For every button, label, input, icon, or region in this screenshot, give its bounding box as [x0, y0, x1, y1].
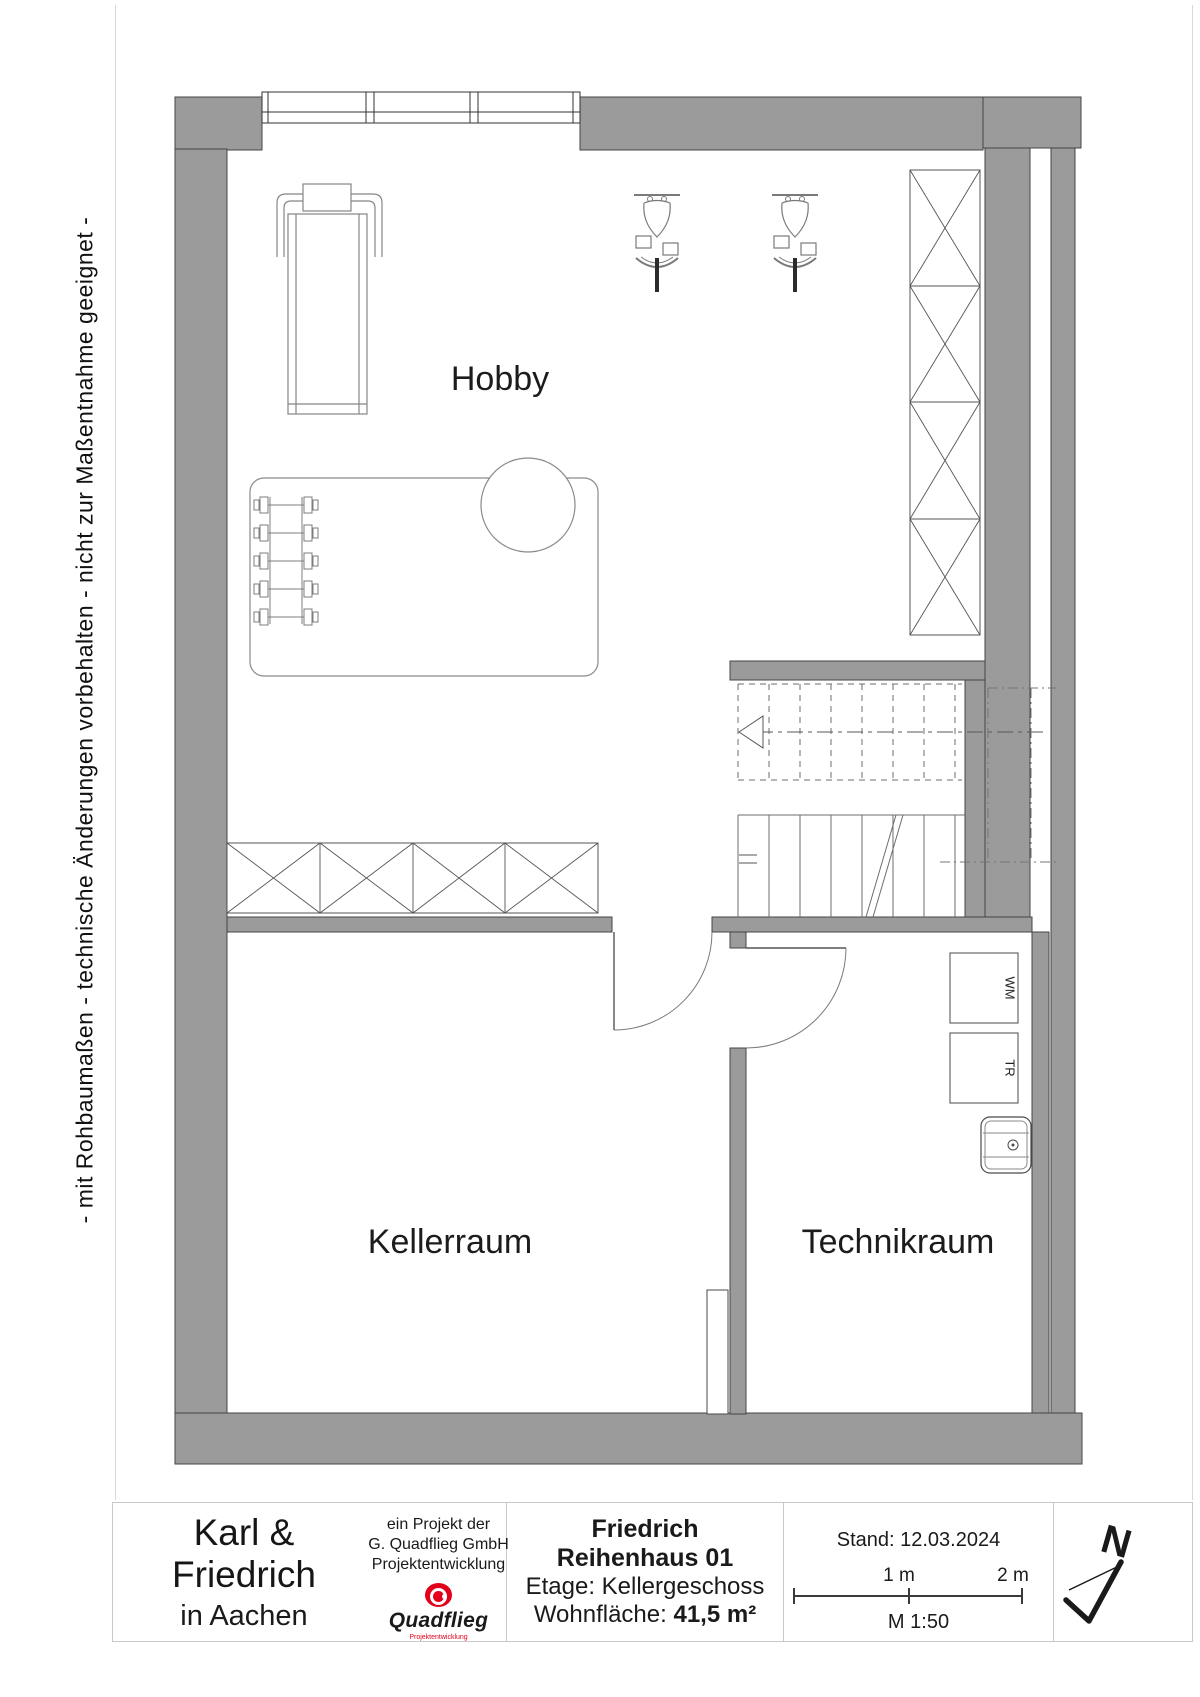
- logo-subtitle: Projektentwicklung: [409, 1634, 467, 1641]
- project-name: Friedrich: [592, 1515, 699, 1544]
- radiator: [707, 1290, 728, 1414]
- project-house: Reihenhaus 01: [557, 1544, 733, 1573]
- scale-tick: [1021, 1588, 1023, 1604]
- client-name: Karl & Friedrich: [119, 1512, 369, 1596]
- dryer-label: TR: [1003, 1059, 1018, 1076]
- wall-door-stub: [730, 932, 746, 948]
- utility-sink-icon: [981, 1117, 1031, 1173]
- plan-scale: M 1:50: [784, 1611, 1053, 1634]
- company-line: G. Quadflieg GmbH: [368, 1535, 509, 1555]
- stair-direction-arrow: [739, 716, 763, 748]
- title-block: Karl & Friedrich in Aachen ein Projekt d…: [112, 1502, 1193, 1642]
- project-floor: Etage: Kellergeschoss: [526, 1573, 765, 1601]
- wall-top: [580, 97, 983, 150]
- quadflieg-logo-icon: [425, 1583, 452, 1607]
- scale-label-1m: 1 m: [869, 1565, 929, 1587]
- client-city: in Aachen: [180, 1600, 307, 1633]
- wall-bottom: [175, 1413, 1082, 1464]
- wall-stairwell-bottom: [712, 917, 1032, 932]
- wall-right-inner-leaf: [985, 148, 1030, 932]
- exercise-bike-icon: [772, 195, 818, 292]
- north-letter: N: [1096, 1517, 1136, 1567]
- shelf-cabinet: [227, 843, 598, 913]
- washing-machine-label: WM: [1003, 976, 1018, 999]
- wall-above-stairs: [730, 661, 985, 680]
- scale-tick: [908, 1588, 910, 1604]
- title-block-north: N: [1053, 1503, 1192, 1641]
- company-line: Projektentwicklung: [372, 1555, 505, 1575]
- stair-break-line: [873, 815, 903, 917]
- wall-stairwell-right: [965, 680, 985, 932]
- scale-tick: [793, 1588, 795, 1604]
- title-block-meta: Stand: 12.03.2024 1 m 2 m M 1:50: [784, 1503, 1053, 1641]
- door-technikraum: [746, 948, 846, 1048]
- project-area: Wohnfläche: 41,5 m²: [534, 1601, 756, 1629]
- dryer: TR: [950, 1033, 1018, 1103]
- title-block-company: ein Projekt der G. Quadflieg GmbH Projek…: [371, 1503, 506, 1641]
- wall-hobby-kellerraum: [227, 917, 612, 932]
- wall-left: [175, 149, 227, 1414]
- door-kellerraum: [614, 932, 712, 1030]
- area-value: 41,5 m²: [673, 1601, 756, 1628]
- title-block-client: Karl & Friedrich in Aachen: [119, 1503, 369, 1641]
- washing-machine: WM: [950, 953, 1018, 1023]
- wardrobe-cabinet: [910, 170, 980, 635]
- wall-party-outer-leaf: [1051, 148, 1075, 1414]
- wall-top-right-block: [983, 97, 1081, 148]
- room-label-kellerraum: Kellerraum: [368, 1223, 532, 1261]
- plan-date: Stand: 12.03.2024: [784, 1529, 1053, 1552]
- treadmill-icon: [277, 184, 382, 414]
- wall-kellerraum-technikraum: [730, 1048, 746, 1414]
- room-label-technikraum: Technikraum: [802, 1223, 995, 1261]
- company-line: ein Projekt der: [387, 1515, 490, 1535]
- floor-plan-svg: WM TR Hobby Kellerraum Technikraum: [0, 0, 1200, 1500]
- logo-name: Quadflieg: [389, 1609, 489, 1633]
- room-label-hobby: Hobby: [451, 360, 549, 398]
- wall-top-left-corner: [175, 97, 262, 150]
- stair-break-line: [866, 815, 896, 917]
- window: [262, 92, 580, 123]
- wall-right-inner-leaf-lower: [1032, 932, 1049, 1414]
- title-block-project: Friedrich Reihenhaus 01 Etage: Kellerges…: [507, 1503, 783, 1641]
- area-label: Wohnfläche:: [534, 1601, 667, 1628]
- scale-label-2m: 2 m: [983, 1565, 1043, 1587]
- floor-plan-page: { "margin_note": "- mit Rohbaumaßen - te…: [0, 0, 1200, 1697]
- exercise-bike-icon: [634, 195, 680, 292]
- north-arrow-icon: N: [1052, 1503, 1193, 1641]
- exercise-ball-icon: [481, 458, 575, 552]
